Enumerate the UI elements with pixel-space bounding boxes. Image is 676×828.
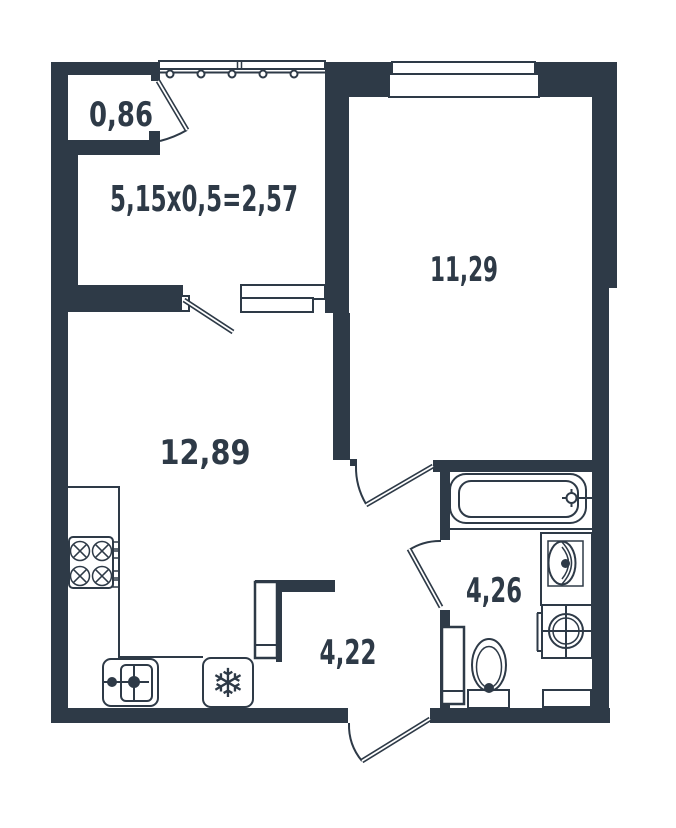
wall: [325, 62, 349, 313]
balcony-glazing-icon: [159, 61, 325, 78]
toilet-icon: [468, 639, 509, 708]
room-label-hallway: 4,22: [320, 633, 377, 673]
glazing-post: [167, 71, 174, 78]
washbasin-icon: [541, 533, 592, 605]
bedroom-door-swing-icon: [356, 466, 433, 505]
hall-door-jamb: [255, 582, 277, 658]
wall: [51, 62, 68, 723]
bathroom-door-jamb: [442, 627, 464, 704]
wall: [433, 460, 592, 472]
glazing-post: [291, 71, 298, 78]
glazing-post: [229, 71, 236, 78]
wall: [592, 288, 609, 723]
closet-door-swing-icon: [158, 81, 187, 141]
room-label-balcony-calc: 5,15x0,5=2,57: [110, 179, 298, 220]
kitchen-fixtures: ❄: [68, 487, 253, 707]
kitchen-sink-icon: [103, 659, 158, 706]
walls: [51, 62, 617, 723]
living-window-icon: [241, 285, 325, 299]
glazing-post: [198, 71, 205, 78]
stove-icon: [69, 537, 119, 588]
floor-plan: ❄: [0, 0, 676, 828]
washing-machine-icon: [537, 605, 592, 707]
room-label-bathroom: 4,26: [466, 571, 522, 611]
glazing-post: [260, 71, 267, 78]
bathroom-cabinet: [543, 690, 591, 707]
bathroom-door-swing-icon: [409, 541, 441, 607]
wall: [68, 285, 183, 312]
room-label-living-kitchen: 12,89: [160, 433, 251, 473]
wall: [430, 708, 610, 723]
entrance-door-swing-icon: [349, 719, 430, 761]
bedroom-window-sill: [389, 74, 539, 97]
room-label-balcony-closet: 0,86: [89, 95, 153, 135]
wall: [333, 313, 350, 460]
snowflake-icon: ❄: [211, 661, 245, 707]
floor-plan-canvas: ❄: [0, 0, 676, 828]
wall: [592, 62, 617, 288]
wall: [51, 708, 348, 723]
bathtub-icon: [448, 474, 593, 529]
room-label-bedroom: 11,29: [430, 250, 498, 290]
fridge-icon: ❄: [203, 658, 253, 707]
wall: [68, 140, 160, 155]
wall: [350, 459, 357, 466]
living-window-sill: [241, 298, 313, 312]
balcony-door-swing-icon: [181, 296, 233, 332]
